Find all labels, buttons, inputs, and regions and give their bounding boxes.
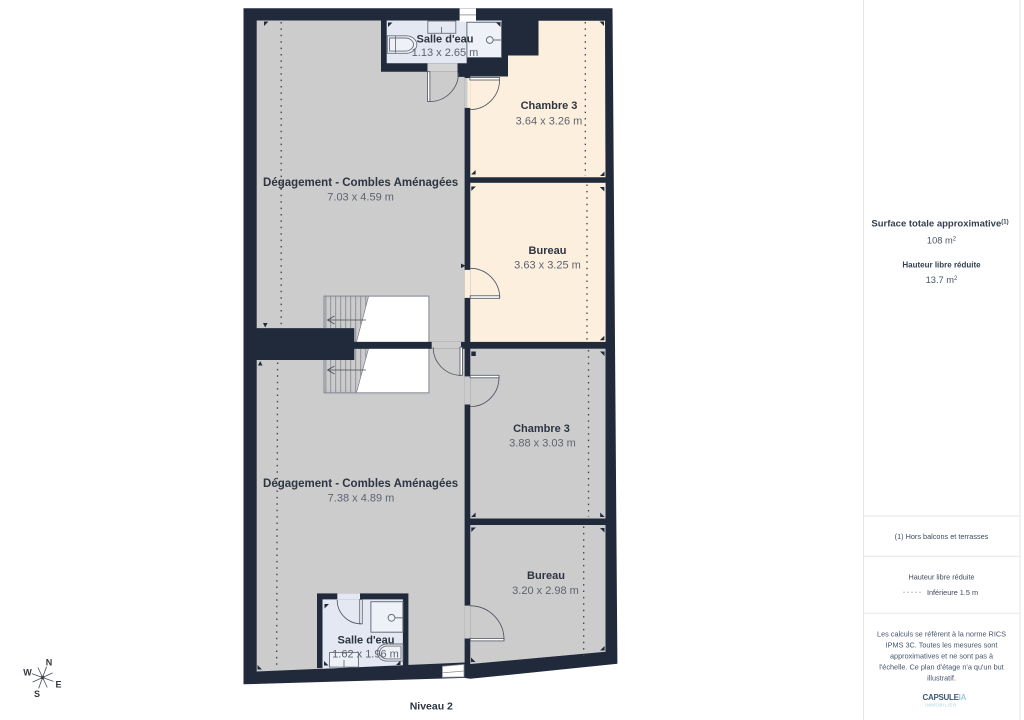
svg-text:Hauteur libre réduite: Hauteur libre réduite (908, 573, 974, 582)
svg-text:Salle d'eau: Salle d'eau (416, 34, 473, 46)
svg-text:W: W (23, 668, 32, 678)
svg-text:3.64 x 3.26 m: 3.64 x 3.26 m (516, 116, 583, 128)
svg-text:108 m2: 108 m2 (927, 236, 957, 246)
svg-text:Dégagement - Combles Aménagées: Dégagement - Combles Aménagées (263, 177, 458, 189)
svg-text:Niveau 2: Niveau 2 (410, 701, 453, 713)
svg-text:13.7 m2: 13.7 m2 (926, 275, 958, 285)
svg-text:CAPSULEIA: CAPSULEIA (923, 693, 967, 702)
svg-text:Les calculs se réfèrent à la n: Les calculs se réfèrent à la norme RICS (877, 629, 1006, 638)
svg-text:Inférieure 1.5 m: Inférieure 1.5 m (927, 588, 978, 597)
svg-text:1.62 x 1.96 m: 1.62 x 1.96 m (332, 649, 399, 661)
svg-text:3.88 x 3.03 m: 3.88 x 3.03 m (509, 438, 576, 450)
svg-text:3.20 x 2.98 m: 3.20 x 2.98 m (512, 585, 579, 597)
svg-text:E: E (55, 680, 61, 690)
svg-text:Bureau: Bureau (527, 570, 565, 582)
svg-text:l'échelle. Ce plan d'étage n'a: l'échelle. Ce plan d'étage n'a qu'un but (879, 662, 1003, 671)
svg-text:Hauteur libre réduite: Hauteur libre réduite (902, 260, 981, 269)
svg-text:Chambre 3: Chambre 3 (521, 100, 578, 112)
svg-text:IPMS 3C. Toutes les mesures so: IPMS 3C. Toutes les mesures sont (886, 640, 998, 649)
svg-text:approximatives et ne sont pas: approximatives et ne sont pas à (890, 651, 994, 660)
svg-text:N: N (46, 658, 53, 668)
svg-text:1.13 x 2.65 m: 1.13 x 2.65 m (412, 47, 479, 59)
svg-text:Dégagement - Combles Aménagées: Dégagement - Combles Aménagées (263, 478, 458, 490)
svg-text:Chambre 3: Chambre 3 (513, 423, 570, 435)
svg-text:Surface totale approximative(1: Surface totale approximative(1) (871, 219, 1008, 230)
svg-text:IMMOBILIER: IMMOBILIER (925, 703, 957, 708)
svg-text:(1) Hors balcons et terrasses: (1) Hors balcons et terrasses (895, 532, 989, 541)
svg-text:7.38 x 4.89 m: 7.38 x 4.89 m (328, 493, 395, 505)
svg-text:S: S (34, 689, 40, 699)
svg-text:Bureau: Bureau (529, 245, 567, 257)
svg-text:3.63 x 3.25 m: 3.63 x 3.25 m (514, 260, 581, 272)
svg-text:Salle d'eau: Salle d'eau (337, 635, 394, 647)
svg-text:7.03 x 4.59 m: 7.03 x 4.59 m (327, 192, 394, 204)
svg-text:illustratif.: illustratif. (927, 673, 956, 682)
